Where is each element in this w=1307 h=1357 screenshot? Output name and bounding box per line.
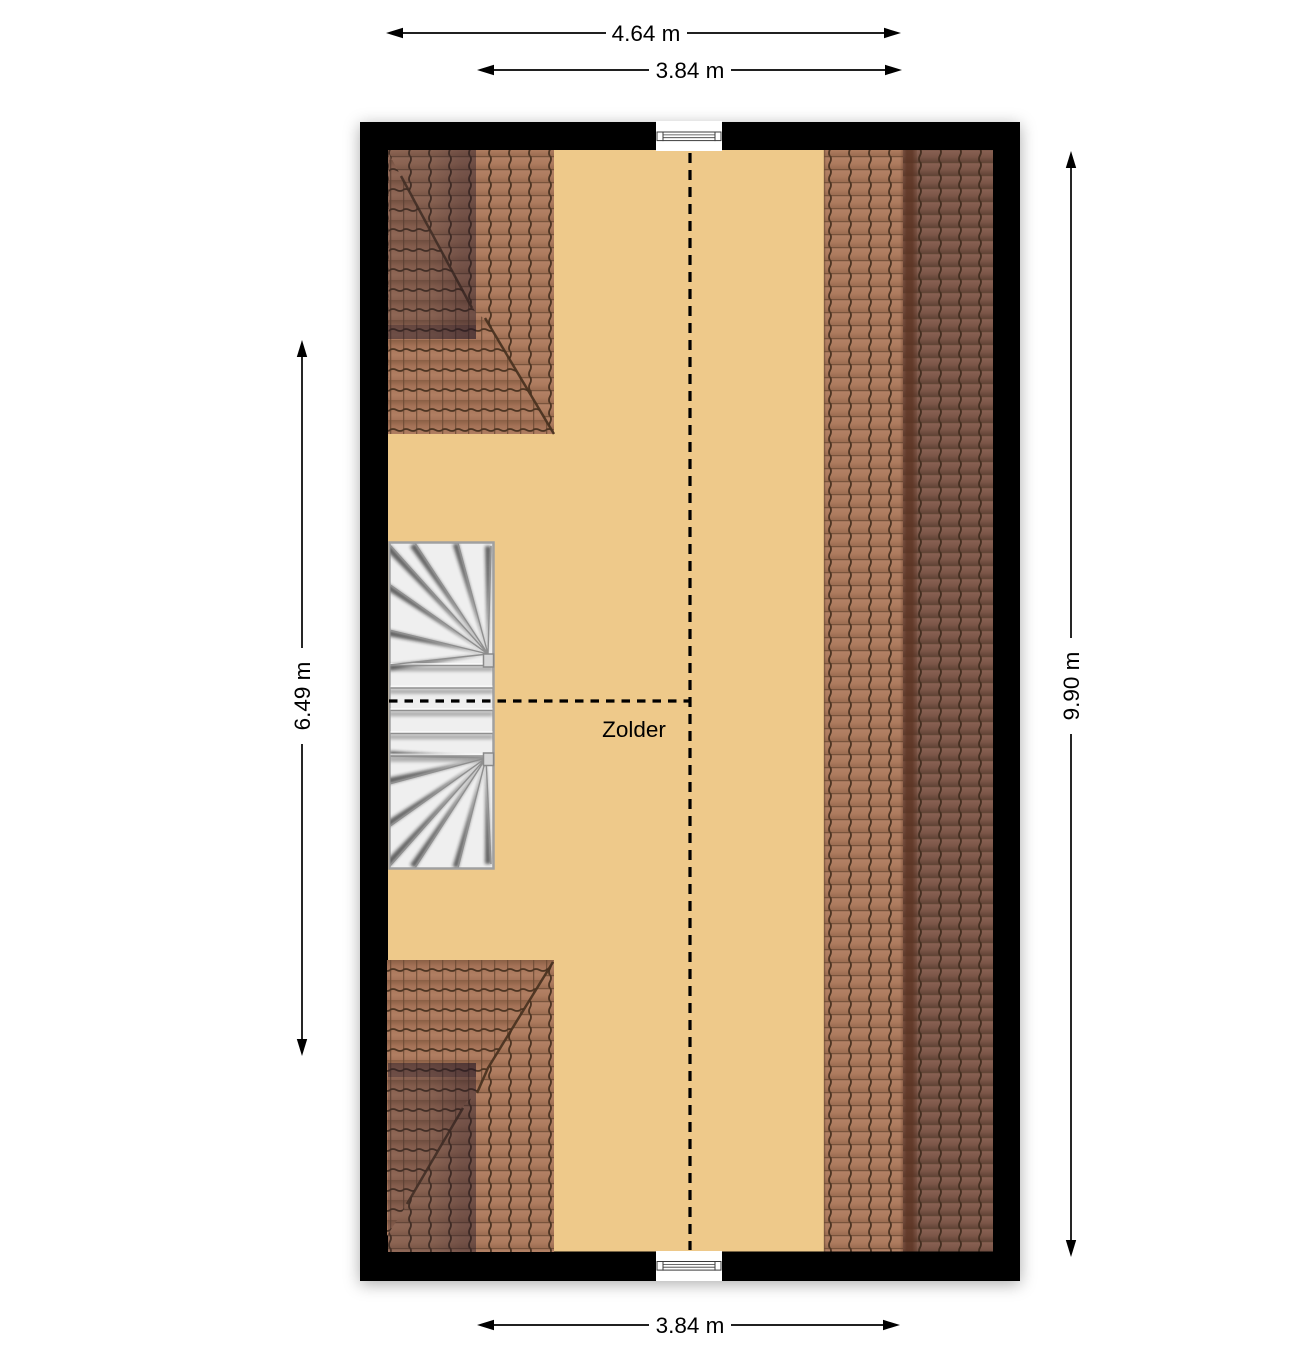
svg-text:4.64 m: 4.64 m [612, 21, 681, 46]
svg-text:3.84 m: 3.84 m [656, 1313, 725, 1338]
svg-text:3.84 m: 3.84 m [656, 58, 725, 83]
svg-text:Zolder: Zolder [602, 717, 666, 742]
svg-text:6.49 m: 6.49 m [290, 662, 315, 731]
svg-text:9.90 m: 9.90 m [1059, 652, 1084, 721]
